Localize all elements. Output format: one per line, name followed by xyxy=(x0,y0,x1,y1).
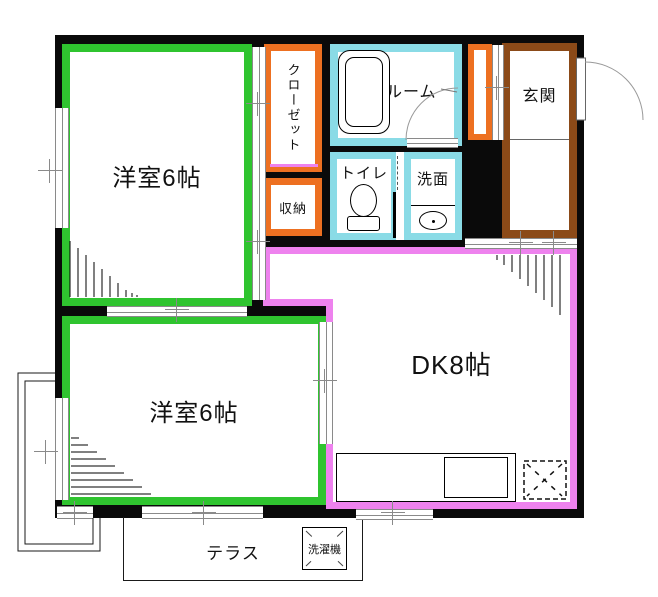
dk-alcove xyxy=(263,247,333,306)
room-storage: 収納 xyxy=(264,178,322,236)
closet-sliding-doors xyxy=(252,47,266,300)
toilet-label: トイレ xyxy=(337,162,391,183)
entrance-side-panel xyxy=(492,45,504,140)
toilet-tank-icon xyxy=(347,216,380,231)
storage-label: 収納 xyxy=(279,198,307,217)
floor-plan: テラス 洋室6帖 洋室6帖 DK8帖 クローゼット 収納 バスルーム トイレ 洗… xyxy=(0,0,658,597)
room-closet: クローゼット xyxy=(264,44,322,172)
hall-dk-doorway xyxy=(465,238,577,249)
bathtub-inner xyxy=(345,57,383,127)
entrance-step-line xyxy=(510,139,569,140)
toilet-door-dashed xyxy=(397,156,398,190)
window-dk-bottom xyxy=(356,509,433,520)
window-west1-left xyxy=(55,108,69,228)
washroom-label: 洗面 xyxy=(411,168,455,189)
window-west2-bottom xyxy=(142,506,263,519)
washing-machine-label: 洗濯機 xyxy=(308,541,341,557)
shoe-cabinet xyxy=(468,44,492,140)
window-bottom-left xyxy=(57,506,93,519)
washbasin-icon xyxy=(419,211,447,230)
closet-label: クローゼット xyxy=(284,63,303,153)
room-western-1: 洋室6帖 xyxy=(62,44,252,306)
terrace-label: テラス xyxy=(197,539,269,564)
room-dk-label: DK8帖 xyxy=(411,345,492,382)
toilet-door-leaf xyxy=(393,192,396,238)
sliding-door-between-rooms xyxy=(107,306,247,317)
closet-door-line xyxy=(270,164,318,167)
room-western-2-label: 洋室6帖 xyxy=(149,393,238,428)
washstand-counter-line xyxy=(411,205,455,206)
kitchen-sink xyxy=(444,457,508,498)
basin-drain-dot xyxy=(432,220,435,223)
washing-machine-pan: 洗濯機 xyxy=(302,527,347,570)
room-western-2: 洋室6帖 xyxy=(62,316,326,505)
room-entrance: 玄関 xyxy=(502,43,577,238)
entrance-door-arc xyxy=(585,62,643,120)
sliding-door-west2-dk xyxy=(319,322,333,444)
room-western-1-label: 洋室6帖 xyxy=(112,158,201,193)
entrance-label: 玄関 xyxy=(510,82,569,106)
window-west2-left xyxy=(55,398,69,500)
toilet-bowl-icon xyxy=(350,184,377,217)
bathroom-doorway xyxy=(407,138,458,148)
